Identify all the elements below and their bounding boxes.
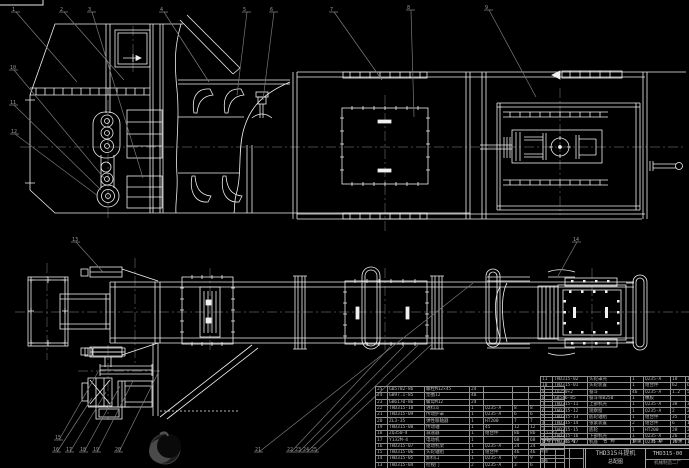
bom-row: 13THD315-04检视门2Q235-A36 xyxy=(376,462,565,468)
cad-canvas: 1234567891011121314151617181920212223242… xyxy=(0,0,689,468)
balloon-label: 9 xyxy=(485,5,488,11)
bom-header-row: 序号代 号名 称数量材 料单重总重备注 xyxy=(540,438,689,445)
leader-line xyxy=(558,242,577,276)
leader-line xyxy=(76,242,103,272)
title-block: 制图 审核 THD315斗提机 总配图 THD315-00 机械制造二厂 xyxy=(540,448,689,468)
leader-line xyxy=(14,105,101,190)
frame-corner xyxy=(0,0,43,5)
balloon-label: 10 xyxy=(10,65,16,71)
leader-line xyxy=(334,12,382,80)
balloon-label: 20 xyxy=(115,447,121,453)
balloon-label: 4 xyxy=(160,7,163,13)
leader-line xyxy=(15,134,98,196)
bom-table-left: 25GB5782-86螺栓M12×452424GB97.1-85垫圈124823… xyxy=(375,386,565,468)
drawing-number: THD315-00 xyxy=(646,449,689,460)
balloon-label: 13 xyxy=(72,237,78,243)
balloon-label: 25 xyxy=(311,447,317,453)
balloon-label: 24 xyxy=(303,447,309,453)
balloon-label: 17 xyxy=(66,447,72,453)
leader-line xyxy=(164,12,209,82)
sheet-name: 总配图 xyxy=(586,458,645,466)
leader-line xyxy=(489,10,536,97)
title-block-signature-grid: 制图 审核 xyxy=(541,449,586,468)
leader-line xyxy=(16,12,77,82)
balloon-label: 15 xyxy=(55,435,61,441)
watermark-blob xyxy=(149,432,181,464)
balloon-label: 23 xyxy=(295,447,301,453)
leader-line xyxy=(14,70,104,178)
balloon-label: 14 xyxy=(573,237,579,243)
leader-line xyxy=(411,10,414,117)
title-cell-draw: 制图 xyxy=(541,449,556,459)
balloon-label: 1 xyxy=(12,7,15,13)
balloon-label: 5 xyxy=(243,7,246,13)
balloon-label: 16 xyxy=(53,447,59,453)
drawing-title: THD315斗提机 总配图 xyxy=(586,449,646,468)
balloon-label: 12 xyxy=(11,129,17,135)
balloon-label: 22 xyxy=(287,447,293,453)
balloon-label: 18 xyxy=(80,447,86,453)
balloon-label: 8 xyxy=(407,5,410,11)
drawing-number-cell: THD315-00 机械制造二厂 xyxy=(646,449,689,468)
leader-line xyxy=(237,12,247,95)
centerlines xyxy=(15,26,689,420)
product-name: THD315斗提机 xyxy=(586,449,645,458)
balloon-label: 19 xyxy=(93,447,99,453)
balloon-label: 2 xyxy=(60,7,63,13)
bom-row: 序号代 号名 称数量材 料单重总重备注 xyxy=(541,439,689,445)
balloon-label: 6 xyxy=(270,7,273,13)
title-cell-check: 审核 xyxy=(541,459,556,468)
leader-line xyxy=(263,12,274,100)
leader-line xyxy=(97,381,133,452)
balloon-label: 11 xyxy=(10,100,16,106)
balloon-label: 3 xyxy=(88,7,91,13)
balloon-label: 7 xyxy=(330,7,333,13)
bom-table-right: 11THD315-02头轮罩壳1Q235-A181810THD315-01头轮装… xyxy=(540,376,689,446)
balloon-label: 21 xyxy=(255,447,261,453)
company-name: 机械制造二厂 xyxy=(646,460,689,468)
